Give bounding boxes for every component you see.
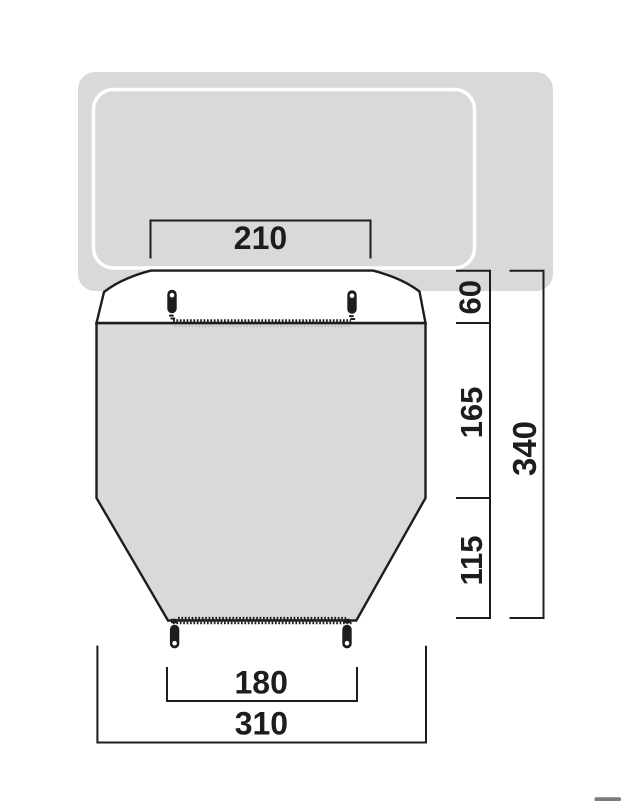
svg-text:60: 60 bbox=[452, 280, 487, 314]
svg-text:340: 340 bbox=[506, 421, 543, 476]
svg-text:210: 210 bbox=[234, 220, 287, 256]
svg-text:115: 115 bbox=[454, 535, 489, 585]
svg-text:310: 310 bbox=[235, 706, 288, 742]
svg-text:165: 165 bbox=[454, 387, 489, 439]
svg-text:180: 180 bbox=[235, 665, 288, 701]
